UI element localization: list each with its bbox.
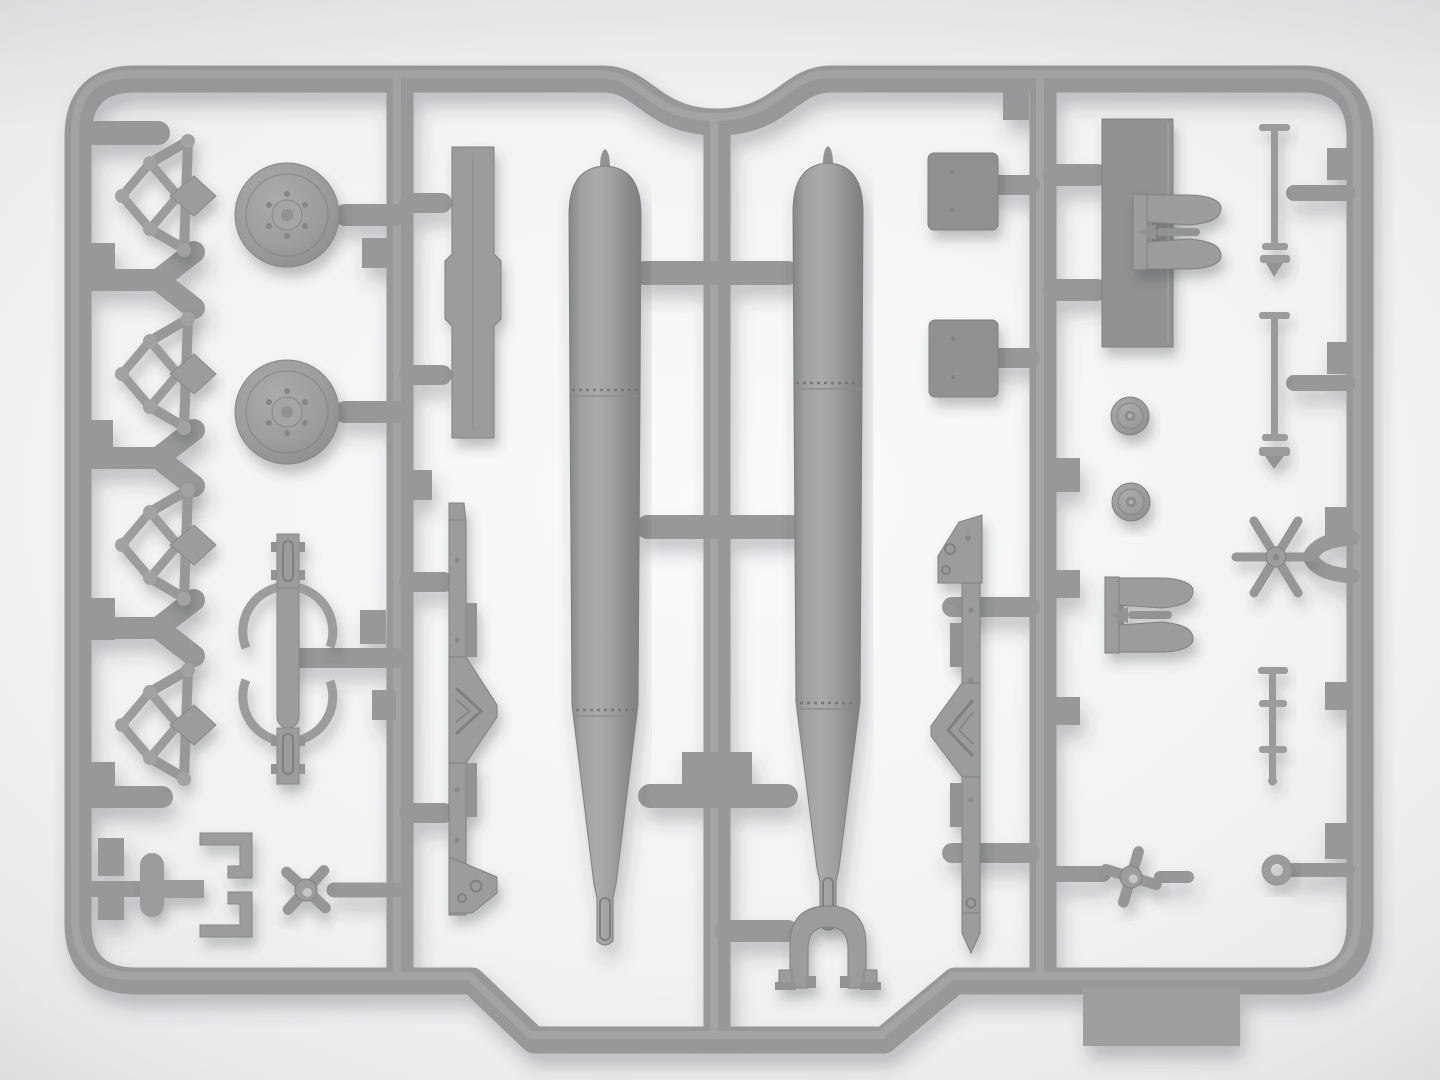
torpedo-left xyxy=(569,149,641,945)
scissor-linkage xyxy=(115,134,216,257)
release-fork-top xyxy=(1133,194,1221,270)
scissor-linkage xyxy=(115,483,216,606)
six-spoke-hub xyxy=(1236,521,1310,593)
small-wheel-top xyxy=(1111,397,1149,435)
four-blade-propeller-right xyxy=(1104,850,1158,904)
axle-rod-2 xyxy=(1259,312,1290,469)
small-wheel-bottom xyxy=(1112,483,1150,521)
sprue-svg xyxy=(0,0,1440,1080)
scissor-linkage xyxy=(115,312,216,435)
road-wheel-top xyxy=(235,163,339,267)
tail-clamp-arch xyxy=(775,906,881,990)
road-wheel-bottom xyxy=(235,360,339,464)
tow-ring xyxy=(1262,855,1292,885)
release-fork-bottom xyxy=(1105,577,1193,653)
axle-rod-3 xyxy=(1258,667,1288,786)
corner-bracket xyxy=(140,833,252,937)
axle-rod-1 xyxy=(1259,124,1290,277)
torpedo-right xyxy=(793,146,863,930)
sprue-photo xyxy=(0,0,1440,1080)
bomb-rack-rail-right xyxy=(931,515,982,953)
slotted-plate xyxy=(445,147,501,438)
bottom-attachment-tab xyxy=(1083,988,1240,1046)
square-panel-top xyxy=(928,153,998,230)
scissor-linkage xyxy=(115,663,216,786)
square-panel-bottom xyxy=(929,320,998,397)
bomb-rack-rail-left xyxy=(449,503,497,915)
